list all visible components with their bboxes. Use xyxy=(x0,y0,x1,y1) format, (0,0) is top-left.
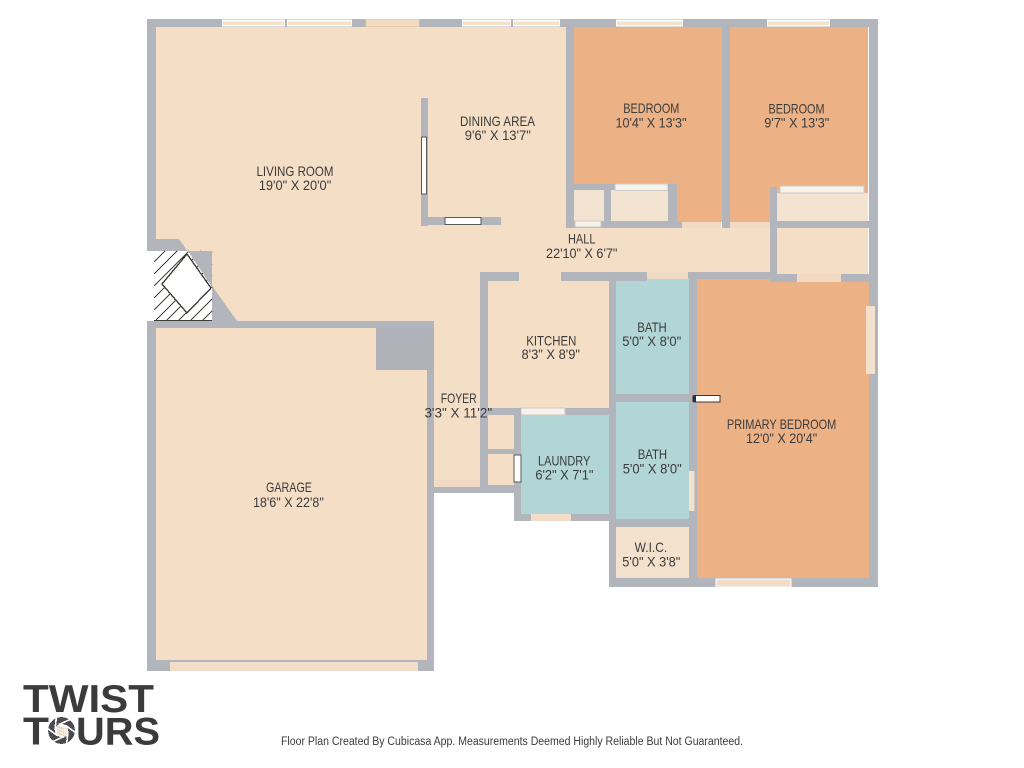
svg-text:URS: URS xyxy=(76,711,160,754)
svg-text:3'3" X 11'2": 3'3" X 11'2" xyxy=(424,405,492,421)
svg-text:22'10" X 6'7": 22'10" X 6'7" xyxy=(546,245,617,261)
svg-text:9'6" X 13'7": 9'6" X 13'7" xyxy=(465,127,531,143)
svg-text:18'6" X 22'8": 18'6" X 22'8" xyxy=(253,494,324,510)
svg-text:10'4" X 13'3": 10'4" X 13'3" xyxy=(616,114,687,130)
svg-text:Floor Plan Created By Cubicasa: Floor Plan Created By Cubicasa App. Meas… xyxy=(281,736,743,748)
svg-text:5'0" X 3'8": 5'0" X 3'8" xyxy=(622,554,680,570)
svg-text:6'2" X 7'1": 6'2" X 7'1" xyxy=(535,467,593,483)
svg-text:5'0" X 8'0": 5'0" X 8'0" xyxy=(622,333,681,349)
svg-text:8'3" X 8'9": 8'3" X 8'9" xyxy=(521,346,580,362)
svg-text:12'0" X 20'4": 12'0" X 20'4" xyxy=(746,430,817,446)
svg-text:T: T xyxy=(23,711,50,754)
svg-text:GARAGE: GARAGE xyxy=(266,479,312,495)
svg-text:5'0" X 8'0": 5'0" X 8'0" xyxy=(623,461,682,477)
svg-text:HALL: HALL xyxy=(568,231,596,247)
svg-text:9'7" X 13'3": 9'7" X 13'3" xyxy=(764,114,829,130)
svg-text:19'0" X 20'0": 19'0" X 20'0" xyxy=(259,177,332,193)
